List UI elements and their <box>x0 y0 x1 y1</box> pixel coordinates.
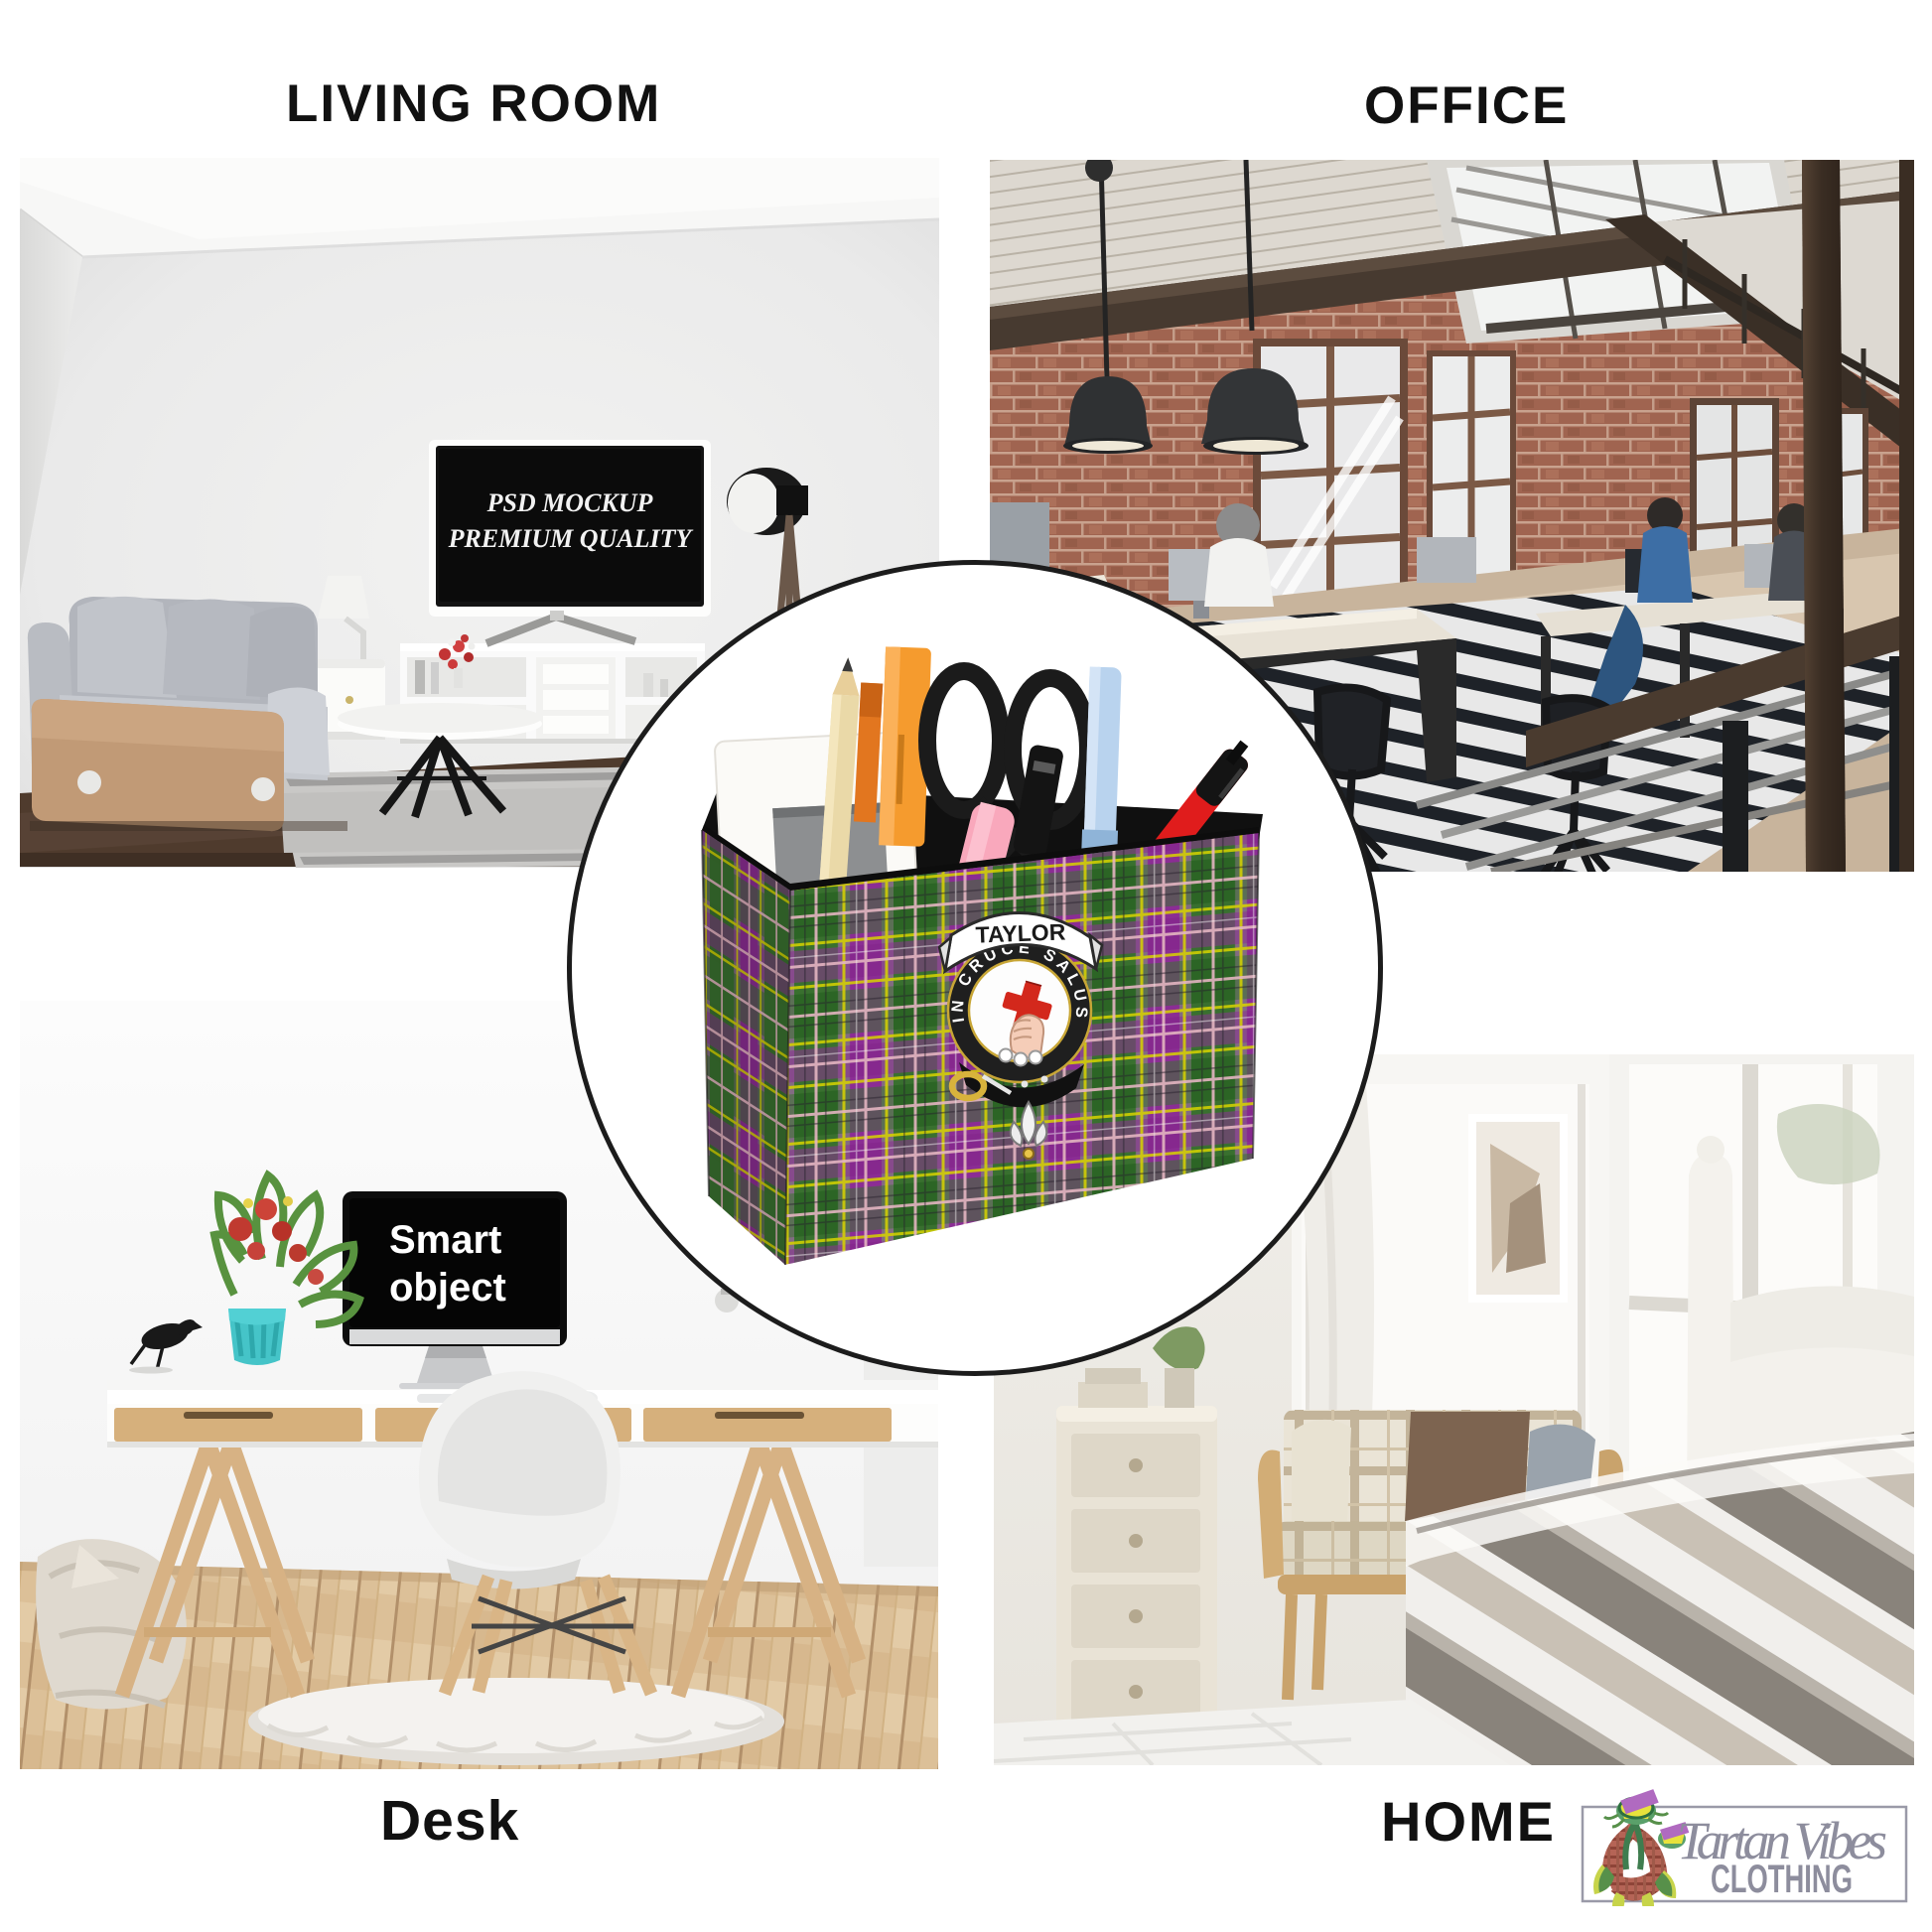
svg-text:CLOTHING: CLOTHING <box>1711 1858 1853 1901</box>
svg-text:TAYLOR: TAYLOR <box>975 918 1066 947</box>
